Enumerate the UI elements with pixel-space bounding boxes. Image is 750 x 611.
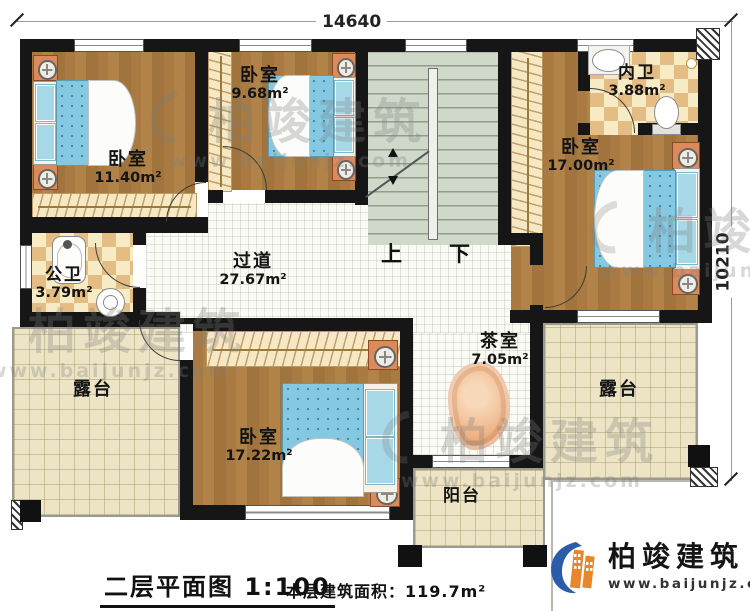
wall: [355, 39, 368, 205]
terrace-left-floor: [12, 327, 180, 517]
room-label-balcony: 阳台: [430, 487, 494, 506]
wall: [193, 318, 413, 331]
bathtub-drain: [63, 240, 72, 249]
brand-logo-icon: [546, 540, 598, 594]
pillow: [677, 173, 697, 217]
brand-url: www.baijunjz.com: [608, 576, 750, 592]
nightstand: [33, 164, 58, 190]
room-label-bedroom-r: 卧室 17.00m²: [533, 138, 629, 174]
wall-end-hatch: [696, 28, 720, 60]
nightstand: [332, 53, 356, 79]
room-label-tea-room: 茶室 7.05m²: [452, 332, 548, 368]
pillow: [36, 124, 55, 160]
pillow: [366, 390, 394, 436]
sink-bowl: [103, 295, 118, 310]
room-label-hallway: 过道 27.67m²: [196, 252, 310, 288]
window: [239, 39, 312, 52]
nightstand: [368, 340, 398, 370]
wall-end-hatch: [690, 467, 718, 487]
wall: [208, 190, 223, 203]
corner-post: [523, 545, 547, 567]
wall: [498, 233, 543, 245]
stool: [432, 352, 452, 372]
dimension-right-label: 10210: [714, 226, 734, 297]
pillow: [36, 85, 55, 121]
light-fixture: [686, 58, 697, 69]
corner-post: [398, 545, 422, 567]
room-label-terrace-left: 露台: [58, 380, 128, 400]
hallway-floor: [208, 203, 368, 245]
toilet: [654, 96, 679, 129]
corner-post: [688, 445, 710, 467]
stairs-down-label: 下: [449, 238, 470, 268]
wall: [180, 318, 193, 324]
room-label-terrace-right: 露台: [584, 380, 654, 400]
balcony-floor: [413, 468, 545, 548]
room-label-bedroom-tm: 卧室 9.68m²: [212, 66, 308, 102]
stair-direction-arrow: [388, 176, 398, 185]
dimension-top-label: 14640: [316, 12, 387, 32]
brand-logo: 柏竣建筑 www.baijunjz.com: [546, 540, 750, 594]
dimension-tick: [10, 13, 24, 27]
room-label-bath-inner: 内卫 3.88m²: [596, 64, 678, 99]
window: [74, 39, 144, 52]
pillow: [335, 118, 353, 152]
nightstand: [332, 155, 356, 181]
wall: [578, 123, 590, 135]
wall: [400, 318, 413, 520]
stool: [438, 416, 458, 436]
wall: [180, 360, 193, 520]
stool: [426, 384, 446, 404]
stair-rail: [428, 68, 438, 240]
corner-post: [20, 500, 41, 522]
wall: [698, 39, 712, 323]
nightstand: [672, 142, 700, 169]
ground-outline: [553, 480, 698, 482]
room-label-bath-public: 公卫 3.79m²: [26, 266, 102, 301]
nightstand: [672, 268, 700, 295]
stair-direction-arrow: [388, 148, 398, 157]
wall: [498, 39, 511, 245]
nightstand: [33, 55, 58, 81]
bed-duvet: [594, 170, 644, 268]
pillow: [677, 220, 697, 264]
window: [245, 505, 390, 520]
floor-plan-page: 14640 10210: [0, 0, 750, 611]
room-label-bedroom-tl: 卧室 11.40m²: [70, 150, 186, 186]
room-label-bedroom-b: 卧室 17.22m²: [203, 428, 315, 464]
stairs-up-label: 上: [381, 238, 402, 268]
brand-name: 柏竣建筑: [608, 543, 750, 571]
wall: [530, 245, 543, 265]
stool: [494, 384, 514, 404]
window: [405, 39, 467, 52]
pillow: [335, 81, 353, 115]
pillow: [366, 438, 394, 484]
floor-area-text: 本层建筑面积：119.7m²: [286, 578, 486, 602]
terrace-right-floor: [543, 323, 698, 480]
window: [577, 310, 660, 323]
window: [432, 455, 510, 468]
wall: [265, 190, 368, 203]
wall: [195, 39, 208, 182]
